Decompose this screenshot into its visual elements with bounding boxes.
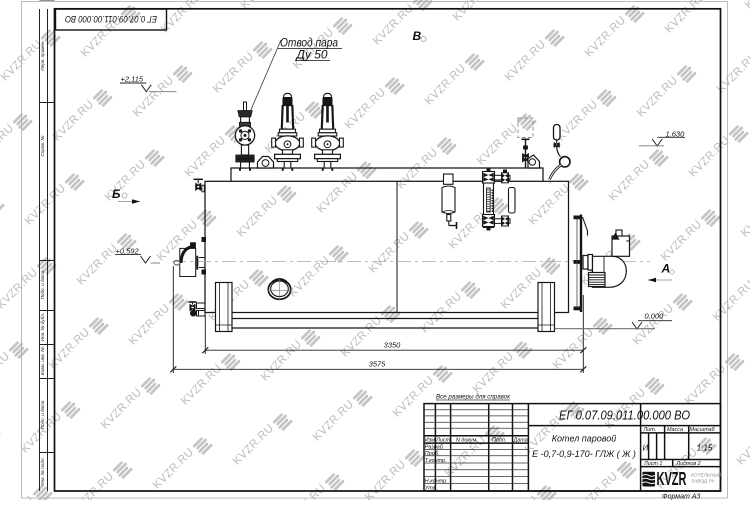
svg-text:Подп. и дата: Подп. и дата xyxy=(40,400,45,429)
svg-text:Справ. №: Справ. № xyxy=(40,136,45,157)
svg-text:Инв. № дубл.: Инв. № дубл. xyxy=(40,313,45,341)
svg-text:+0,592: +0,592 xyxy=(116,247,140,256)
svg-text:Лист: Лист xyxy=(435,438,450,444)
svg-text:Формат А3: Формат А3 xyxy=(662,494,700,501)
svg-text:ЕГ 0.07.09.011.00.000 ВО: ЕГ 0.07.09.011.00.000 ВО xyxy=(65,13,157,24)
svg-text:Масса: Масса xyxy=(667,427,683,433)
svg-text:Котел паровой: Котел паровой xyxy=(552,434,617,444)
svg-text:Инв. № подл.: Инв. № подл. xyxy=(40,457,45,486)
svg-text:Изм.: Изм. xyxy=(425,438,437,444)
svg-text:+2,115: +2,115 xyxy=(121,75,144,84)
svg-text:Т.контр.: Т.контр. xyxy=(425,458,447,464)
svg-text:3350: 3350 xyxy=(384,341,402,350)
svg-text:Масштаб: Масштаб xyxy=(690,427,716,433)
svg-text:KVZR: KVZR xyxy=(657,469,687,489)
svg-text:Е -0,7-0,9-170- ГЛЖ ( Ж ): Е -0,7-0,9-170- ГЛЖ ( Ж ) xyxy=(532,449,636,459)
svg-text:Лист 1: Лист 1 xyxy=(643,461,662,467)
svg-text:Отвод пара: Отвод пара xyxy=(280,38,338,50)
svg-text:Н.контр.: Н.контр. xyxy=(425,479,448,485)
svg-text:Ду 50: Ду 50 xyxy=(294,50,328,62)
svg-text:И: И xyxy=(643,444,649,453)
svg-text:ЗАВОД РУ: ЗАВОД РУ xyxy=(691,479,715,485)
svg-text:Б: Б xyxy=(112,187,121,201)
svg-text:Подп. и дата: Подп. и дата xyxy=(40,270,45,299)
svg-text:3575: 3575 xyxy=(369,360,387,369)
svg-text:А: А xyxy=(661,262,671,276)
svg-text:Перв. примен.: Перв. примен. xyxy=(40,40,45,71)
svg-text:Все размеры для справок: Все размеры для справок xyxy=(436,394,511,401)
svg-text:Лит.: Лит. xyxy=(643,427,657,433)
svg-text:N докум.: N докум. xyxy=(456,438,478,444)
svg-text:1:15: 1:15 xyxy=(697,444,713,453)
svg-text:Проб.: Проб. xyxy=(425,451,439,457)
svg-text:Листов 2: Листов 2 xyxy=(676,461,701,467)
svg-text:Взам. инв. №: Взам. инв. № xyxy=(40,347,45,375)
svg-text:Утв.: Утв. xyxy=(424,486,437,492)
svg-text:Подп.: Подп. xyxy=(492,438,506,444)
svg-text:Разраб.: Разраб. xyxy=(425,445,445,451)
svg-text:Дата: Дата xyxy=(513,438,528,444)
svg-text:0,000: 0,000 xyxy=(645,312,665,321)
svg-text:В: В xyxy=(413,29,422,43)
svg-text:ЕГ 0.07.09.011.00.000 ВО: ЕГ 0.07.09.011.00.000 ВО xyxy=(559,408,690,423)
